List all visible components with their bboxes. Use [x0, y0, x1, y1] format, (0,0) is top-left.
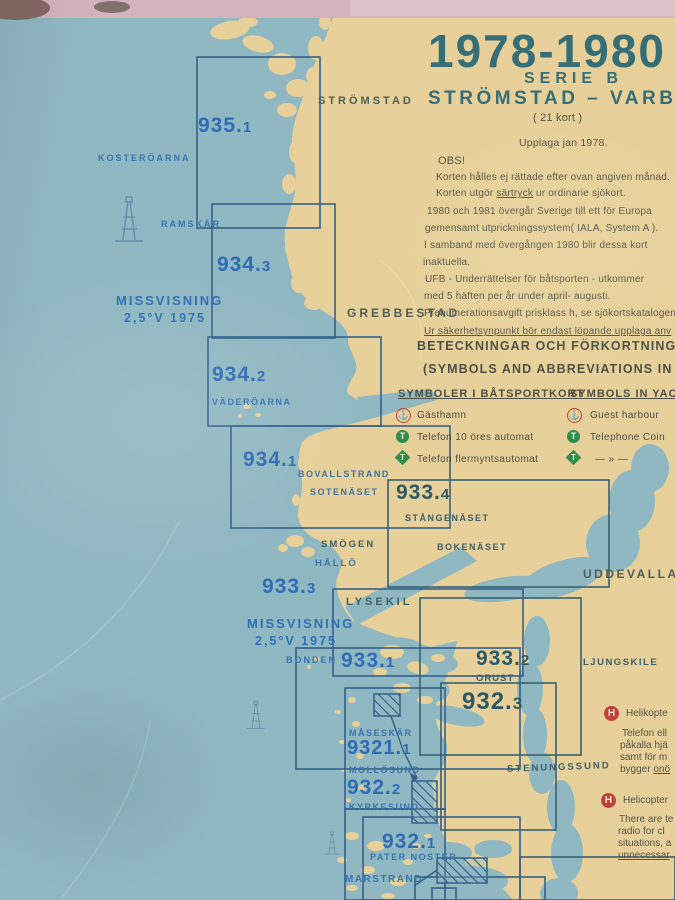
legend-row1-sv: Gästhamn — [417, 410, 466, 421]
edition-note: Upplaga jan 1978. — [519, 137, 608, 149]
telephone-multicoin-icon-en: T — [566, 450, 582, 466]
chart-number-main: 932. — [347, 776, 392, 799]
helicopter-heading-sv: Helikopte — [626, 708, 668, 721]
obs-heading: OBS! — [438, 155, 465, 167]
chart-number-main: 934. — [243, 448, 288, 471]
place-uddevalla: UDDEVALLA — [583, 567, 675, 581]
helicopter-line4-sv: bygger onö — [620, 764, 670, 777]
legend-header-sv: SYMBOLER I BÅTSPORTKORT — [398, 388, 584, 400]
chart-number-932-1: 932.1 — [382, 831, 436, 852]
place-ramskar: RAMSKÄR — [161, 219, 221, 229]
helicopter-line3-sv: samt för m — [620, 752, 667, 765]
chart-series-route: STRÖMSTAD – VARBER — [428, 88, 675, 110]
chart-number-935-1: 935.1 — [198, 115, 252, 136]
missvisning-north-line2: 2,5°V 1975 — [124, 311, 206, 325]
legend-row1-en: Guest harbour — [590, 410, 659, 421]
legend-row3-sv: Telefon flermyntsautomat — [417, 454, 538, 465]
place-lysekil: LYSEKIL — [346, 596, 412, 608]
chart-number-932-2: 932.2 — [347, 777, 401, 798]
chart-number-934-1: 934.1 — [243, 449, 297, 470]
place-orust: ORUST — [476, 673, 514, 684]
legend-row3-en: — » — — [595, 454, 628, 465]
telephone-coin-icon-en: T — [567, 430, 580, 443]
chart-number-main: 934. — [217, 253, 262, 276]
place-pater-noster: PATER NOSTER — [370, 852, 457, 862]
place-ljungskile: LJUNGSKILE — [583, 657, 658, 668]
missvisning-south-line1: MISSVISNING — [247, 616, 354, 631]
telephone-multicoin-letter: T — [397, 452, 408, 463]
helicopter-heading-en: Helicopter — [623, 795, 668, 808]
legend-row2-en: Telephone Coin — [590, 432, 665, 443]
chart-number-suffix: 2 — [521, 652, 530, 669]
chart-number-suffix: 1 — [427, 835, 436, 852]
chart-number-suffix: 3 — [307, 580, 316, 597]
obs-line-2-pre: Korten utgör — [436, 188, 496, 199]
place-marstrand: MARSTRAND — [345, 874, 423, 885]
chart-number-933-4: 933.4 — [396, 482, 450, 503]
beteckningar-heading: BETECKNINGAR OCH FÖRKORTNINGAR I KO — [417, 339, 675, 353]
chart-number-main: 933. — [341, 649, 386, 672]
chart-number-suffix: 3 — [262, 258, 271, 275]
helicopter-icon-sv: H — [604, 706, 619, 721]
place-stromstad: STRÖMSTAD — [318, 95, 414, 107]
chart-number-main: 935. — [198, 114, 243, 137]
chart-number-933-3: 933.3 — [262, 576, 316, 597]
iala-line-1: 1980 och 1981 övergår Sverige till ett f… — [427, 206, 652, 217]
place-vaderoarna: VÄDERÖARNA — [212, 397, 292, 407]
chart-number-934-3: 934.3 — [217, 254, 271, 275]
missvisning-south-line2: 2,5°V 1975 — [255, 634, 337, 648]
chart-number-suffix: 4 — [441, 486, 450, 503]
legend-row2-sv: Telefon 10 öres automat — [417, 432, 534, 443]
place-kosteroarna: KOSTERÖARNA — [98, 153, 191, 163]
place-smogen: SMÖGEN — [321, 539, 375, 550]
telephone-multicoin-letter-en: T — [568, 452, 579, 463]
guest-harbour-icon: ⚓ — [396, 408, 411, 423]
helicopter-line1-sv: Telefon ell — [622, 728, 667, 741]
chart-number-main: 933. — [476, 647, 521, 670]
place-stangenaset: STÅNGENÄSET — [405, 513, 490, 523]
iala-line-2: gemensamt utprickningssystem( IALA, Syst… — [425, 223, 658, 234]
chart-number-suffix: 3 — [513, 694, 523, 713]
obs-line-2-underlined: särtryck — [496, 188, 533, 199]
helicopter-line3-en: situations, a — [618, 838, 671, 851]
chart-number-suffix: 1 — [386, 654, 395, 671]
helicopter-line4-underlined: onö — [653, 764, 670, 775]
place-hallo: HÅLLÖ — [315, 558, 358, 569]
chart-number-main: 932. — [382, 830, 427, 853]
chart-number-932-3: 932.3 — [462, 690, 523, 714]
helicopter-line2-sv: påkalla hjä — [620, 740, 668, 753]
chart-series-name: SERIE B — [524, 70, 623, 88]
helicopter-line1-en: There are te — [619, 814, 673, 827]
chart-number-934-2: 934.2 — [212, 364, 266, 385]
chart-number-main: 934. — [212, 363, 257, 386]
place-bokenaset: BOKENÄSET — [437, 542, 507, 552]
chart-number-suffix: 2 — [257, 368, 266, 385]
legend-header-en: SYMBOLS IN YAC — [570, 388, 675, 400]
iala-line-4: inaktuella. — [423, 257, 470, 268]
place-bovallstrand: BOVALLSTRAND — [298, 469, 390, 479]
wall-smudge-mid — [94, 1, 130, 13]
telephone-coin-icon: T — [396, 430, 409, 443]
chart-number-main: 933. — [262, 575, 307, 598]
helicopter-icon-en: H — [601, 793, 616, 808]
chart-number-9321-1: 9321.1 — [347, 738, 411, 758]
symbols-heading-en: (SYMBOLS AND ABBREVIATIONS IN CHA — [423, 362, 675, 376]
chart-count: ( 21 kort ) — [533, 112, 582, 124]
chart-number-933-2: 933.2 — [476, 648, 530, 669]
chart-number-suffix: 2 — [392, 781, 401, 798]
photo-of-nautical-chart: 1978-1980 SERIE B STRÖMSTAD – VARBER ( 2… — [0, 0, 675, 900]
guest-harbour-icon-en: ⚓ — [567, 408, 582, 423]
ufb-line-1: UFB - Underrättelser för båtsporten - ut… — [425, 274, 644, 285]
missvisning-north-line1: MISSVISNING — [116, 293, 223, 308]
place-grebbestad: GREBBESTAD — [347, 306, 460, 320]
ufb-line-2: med 5 häften per år under april- augusti… — [424, 291, 611, 302]
obs-line-2: Korten utgör särtryck ur ordinarie sjöko… — [436, 188, 626, 199]
chart-number-main: 933. — [396, 481, 441, 504]
obs-line-1: Korten hålles ej rättade efter ovan angi… — [436, 172, 670, 183]
chart-number-main: 932. — [462, 688, 513, 715]
helicopter-line4-pre: bygger — [620, 764, 653, 775]
ufb-line-3: Prenumerationsavgift prisklass h, se sjö… — [424, 308, 675, 319]
obs-line-2-post: ur ordinarie sjökort. — [533, 188, 626, 199]
telephone-multicoin-icon: T — [395, 450, 411, 466]
chart-number-933-1: 933.1 — [341, 650, 395, 671]
chart-number-suffix: 1 — [288, 453, 297, 470]
helicopter-line4-en: unnecessar — [618, 850, 670, 863]
place-maseskar: MÅSESKÄR — [349, 728, 413, 738]
helicopter-line2-en: radio for cl — [618, 826, 665, 839]
place-bonden: BONDEN — [286, 655, 337, 665]
place-mollosund: MOLLÖSUND — [349, 765, 421, 775]
place-sotenaset: SOTENÄSET — [310, 487, 379, 497]
iala-line-3: I samband med övergången 1980 blir dessa… — [424, 240, 648, 251]
chart-number-suffix: 1 — [402, 741, 411, 758]
chart-number-suffix: 1 — [243, 119, 252, 136]
chart-number-main: 9321. — [347, 737, 402, 759]
wall-background-right — [350, 0, 675, 16]
place-kyrkesund: KYRKESUND — [349, 802, 420, 812]
safety-note: Ur säkerhetsynpunkt bör endast löpande u… — [424, 326, 671, 337]
